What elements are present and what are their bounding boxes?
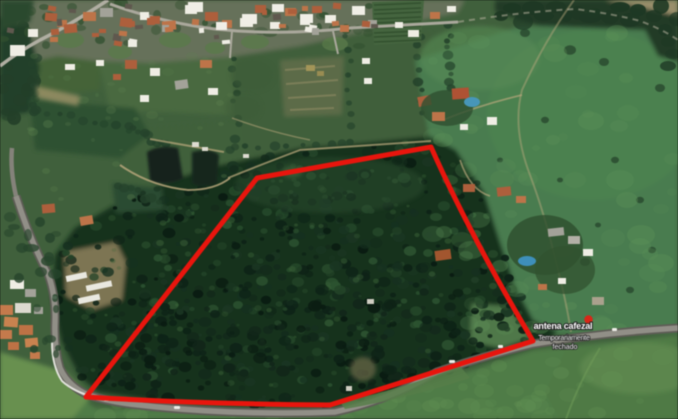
svg-text:Temporariamente: Temporariamente [538, 335, 590, 342]
svg-text:antena cafezal: antena cafezal [534, 321, 593, 331]
svg-text:fechado: fechado [553, 344, 578, 351]
